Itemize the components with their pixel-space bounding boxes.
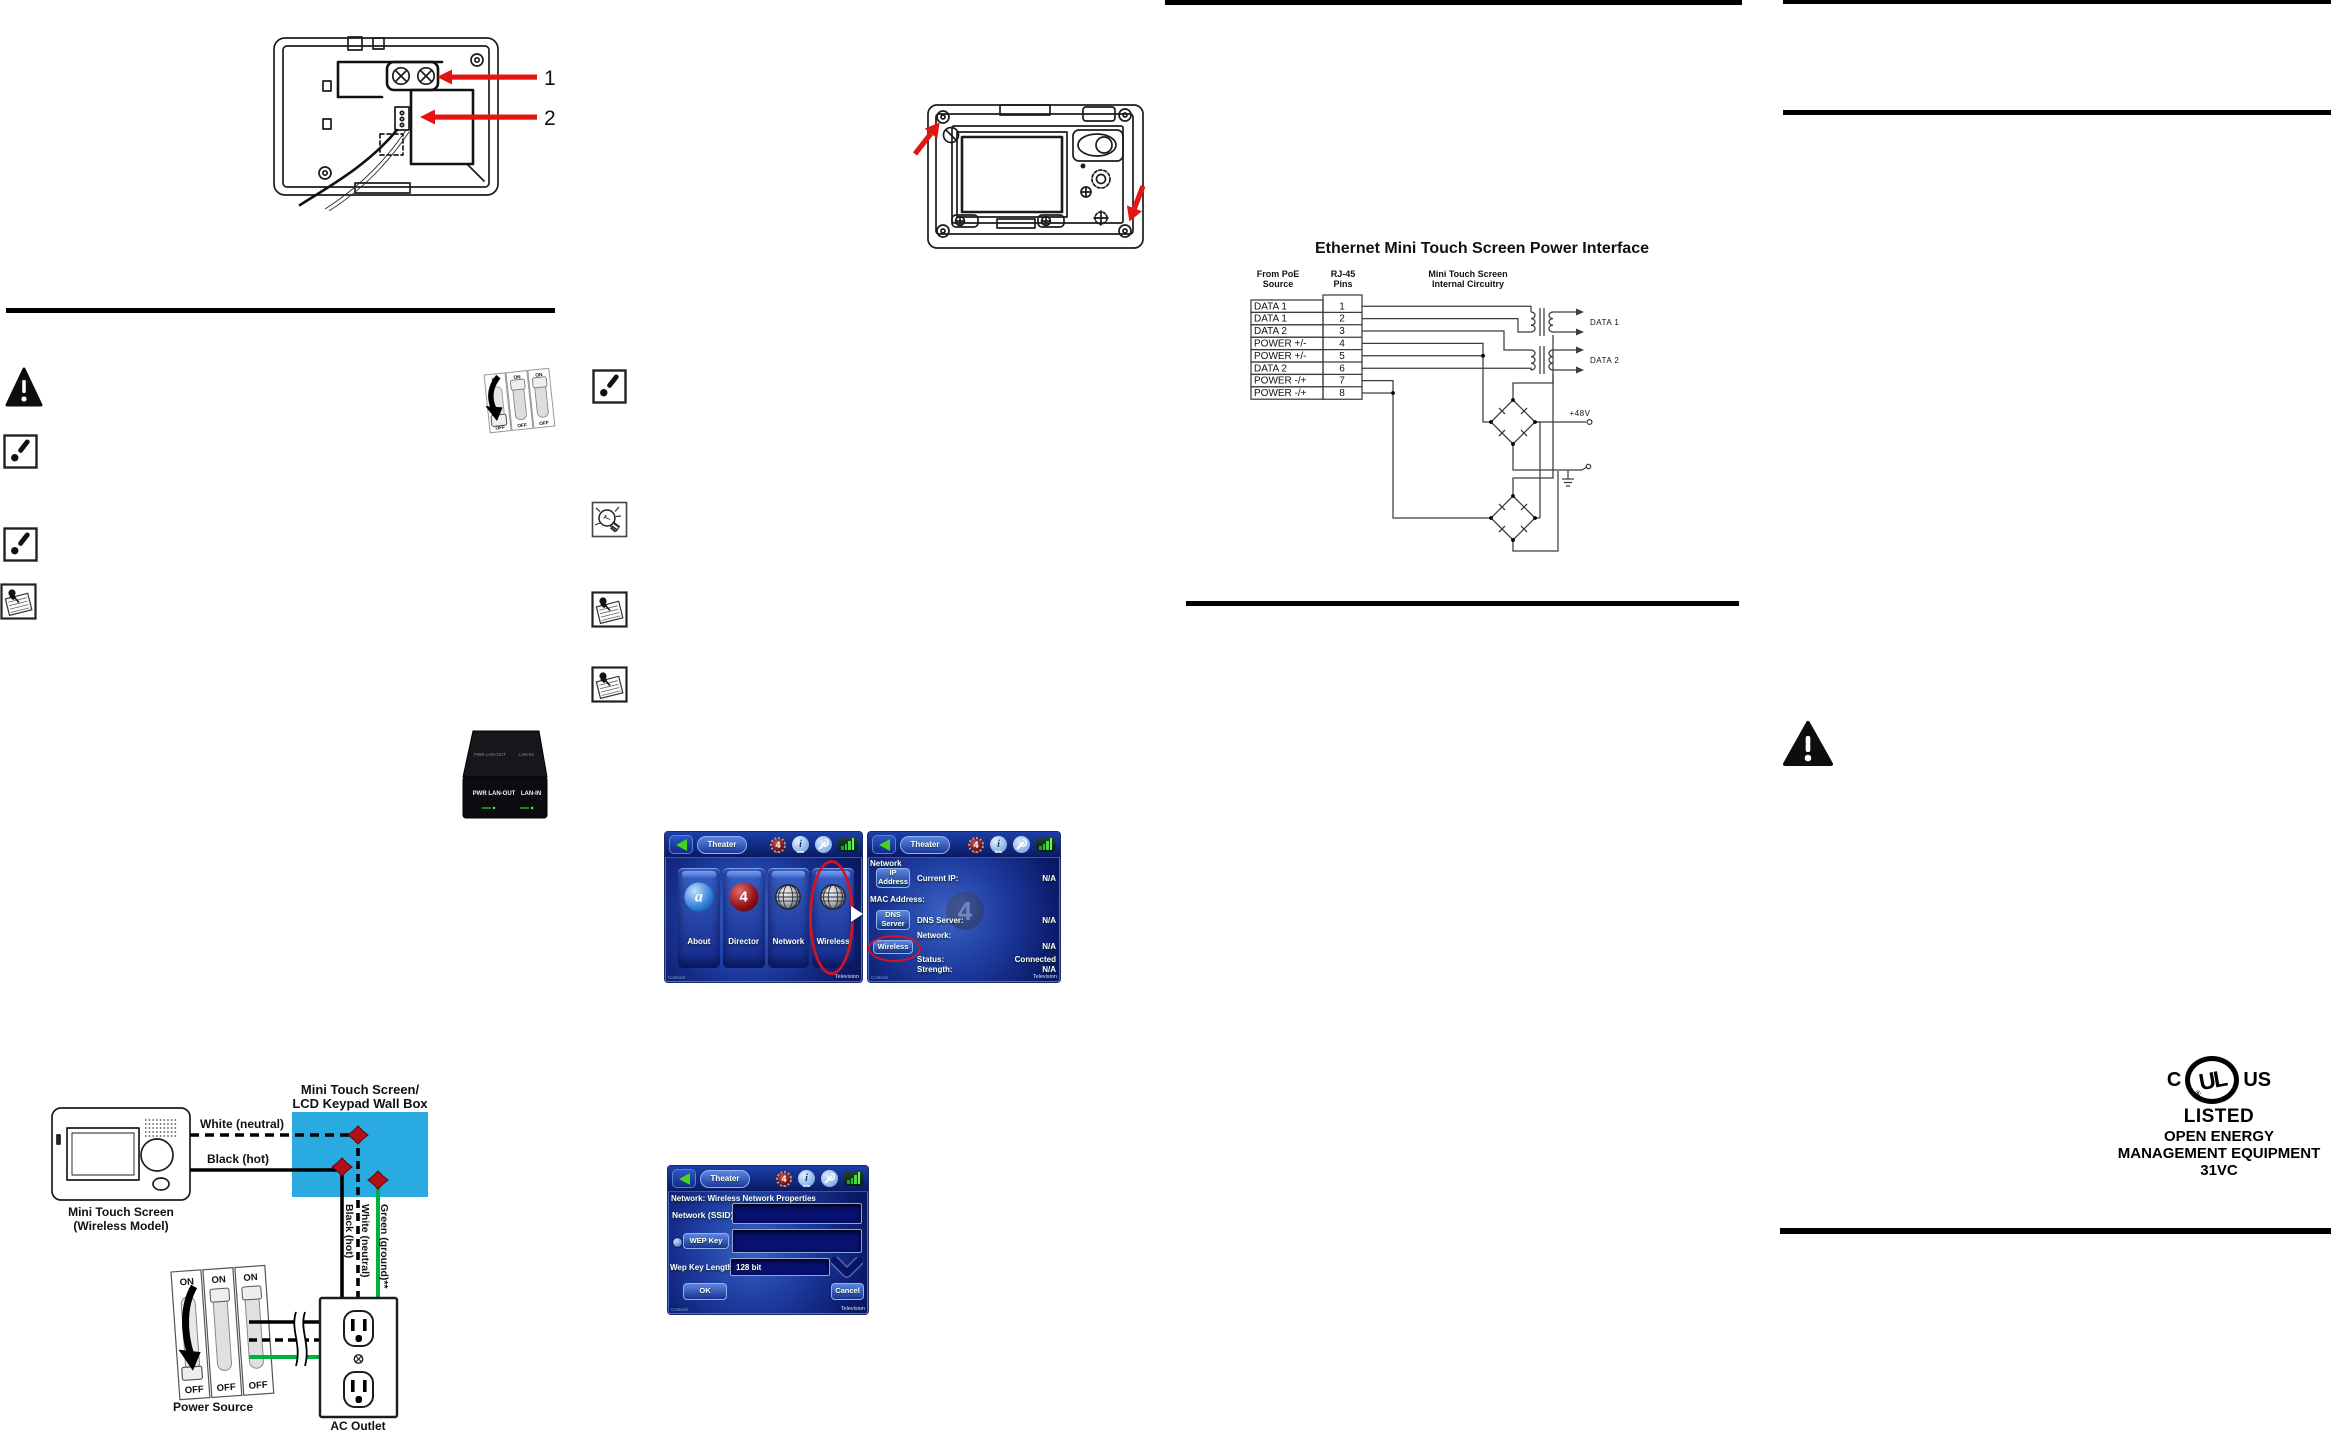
svg-text:OFF: OFF	[539, 420, 549, 427]
wep-key-input[interactable]	[732, 1229, 862, 1253]
signal-strength-icon[interactable]	[844, 1171, 864, 1186]
wep-length-label: Wep Key Length	[670, 1263, 733, 1272]
field-label: Network:	[917, 931, 951, 940]
field-value: N/A	[1042, 916, 1056, 925]
svg-text:1: 1	[1339, 301, 1345, 312]
svg-text:ON: ON	[243, 1272, 258, 1284]
field-label: DNS Server:	[917, 916, 964, 925]
ul-c: C	[2167, 1069, 2181, 1092]
wallbox-rear-diagram: 1 2	[270, 33, 570, 211]
svg-text:POWER -/+: POWER -/+	[1254, 376, 1307, 387]
ul-us: US	[2243, 1069, 2271, 1092]
ip-address-button[interactable]: IP Address	[876, 868, 910, 888]
svg-text:RJ-45: RJ-45	[1331, 269, 1356, 279]
info-icon[interactable]: iInfo	[798, 1170, 815, 1187]
svg-text:+48V: +48V	[1570, 409, 1591, 418]
ssid-input[interactable]	[732, 1203, 862, 1224]
svg-text:6: 6	[1339, 363, 1345, 374]
wep-key-button[interactable]: WEP Key	[683, 1233, 729, 1249]
signal-strength-icon[interactable]	[838, 837, 858, 852]
svg-text:OFF: OFF	[248, 1380, 268, 1392]
svg-text:POWER +/-: POWER +/-	[1254, 339, 1307, 350]
svg-text:OFF: OFF	[517, 422, 527, 429]
svg-text:POWER -/+: POWER -/+	[1254, 388, 1307, 399]
svg-text:5: 5	[1339, 351, 1345, 362]
field-label: MAC Address:	[870, 895, 925, 904]
svg-text:Green (ground)**: Green (ground)**	[378, 1204, 390, 1289]
brand-watermark: Control4	[871, 975, 888, 980]
settings-wrench-icon[interactable]	[815, 836, 832, 853]
ul-circle-logo: UL ®	[2185, 1056, 2239, 1104]
touchscreen-network-status: Theater 4 iInfo 4 Network IP Address DNS…	[868, 832, 1060, 982]
warning-triangle-icon	[1782, 719, 1834, 769]
ethernet-power-interface-diagram: Ethernet Mini Touch Screen Power Interfa…	[1250, 233, 1760, 583]
lightbulb-tip-icon	[591, 501, 628, 538]
ssid-label: Network (SSID)	[672, 1210, 733, 1220]
field-label: Current IP:	[917, 874, 958, 883]
svg-text:White (neutral): White (neutral)	[359, 1204, 371, 1278]
svg-text:Mini Touch Screen/: Mini Touch Screen/	[301, 1082, 420, 1097]
info-icon[interactable]: iInfo	[792, 836, 809, 853]
svg-text:2: 2	[1339, 314, 1345, 325]
warning-triangle-icon	[5, 366, 43, 408]
next-screen-arrow	[851, 906, 863, 922]
location-button[interactable]: Theater	[900, 836, 950, 854]
touchscreen-top-bar: Theater 4 iInfo	[665, 832, 862, 858]
divider-rule	[1783, 110, 2331, 115]
cancel-button[interactable]: Cancel	[831, 1283, 864, 1300]
tile-network[interactable]: Network	[768, 868, 810, 968]
pinned-note-icon	[0, 583, 37, 620]
ac-outlet	[320, 1298, 397, 1417]
svg-text:Power Source: Power Source	[173, 1400, 253, 1414]
field-label: Status:	[917, 955, 944, 964]
touchscreen-settings-main: Theater 4 iInfo a About 4 Director Ne	[665, 832, 862, 982]
svg-text:PWR LAN-OUT: PWR LAN-OUT	[474, 752, 506, 757]
svg-text:Mini Touch Screen: Mini Touch Screen	[1428, 269, 1507, 279]
network-heading: Network	[870, 859, 902, 868]
svg-text:PWR LAN-OUT: PWR LAN-OUT	[473, 791, 516, 797]
svg-text:DATA 1: DATA 1	[1254, 301, 1287, 312]
high-voltage-wiring-diagram: Mini Touch Screen/ LCD Keypad Wall Box M…	[45, 1080, 465, 1432]
svg-text:LAN-IN: LAN-IN	[521, 791, 541, 797]
screw-arrow-bottom-right	[1122, 183, 1151, 224]
annotation-circle-wireless	[868, 935, 921, 962]
svg-text:3: 3	[1339, 326, 1345, 337]
brand-watermark: Control4	[668, 975, 685, 980]
exclamation-note-icon	[592, 369, 627, 404]
svg-text:DATA 2: DATA 2	[1254, 363, 1287, 374]
director-icon: 4	[729, 883, 758, 912]
field-label: Strength:	[917, 965, 953, 974]
svg-text:Mini Touch Screen: Mini Touch Screen	[68, 1205, 174, 1219]
field-value: N/A	[1042, 942, 1056, 951]
about-icon: a	[684, 883, 713, 912]
svg-text:LAN-IN: LAN-IN	[518, 752, 533, 757]
room-label: Television	[1033, 974, 1057, 980]
svg-text:Source: Source	[1263, 279, 1294, 289]
svg-text:OFF: OFF	[216, 1382, 236, 1394]
page-heading: Network: Wireless Network Properties	[671, 1194, 816, 1203]
annotation-circle-wireless	[809, 860, 854, 975]
ethernet-row-labels: DATA 1 DATA 1 DATA 2 POWER +/- POWER +/-…	[1254, 301, 1307, 399]
control4-gear-icon[interactable]: 4	[968, 837, 984, 853]
power-source-switches: ON ON ON OFF OFF OFF	[171, 1265, 274, 1399]
tile-about[interactable]: a About	[678, 868, 720, 968]
svg-text:DATA 2: DATA 2	[1590, 356, 1619, 365]
back-button[interactable]	[672, 1169, 696, 1188]
switch-off-sticker-image: ON ON ON OFF OFF OFF	[474, 363, 556, 439]
svg-text:DATA 2: DATA 2	[1254, 326, 1287, 337]
touchscreen-top-bar: Theater 4 iInfo	[868, 832, 1060, 858]
room-label: Television	[841, 1306, 865, 1312]
settings-wrench-icon[interactable]	[821, 1170, 838, 1187]
svg-text:8: 8	[1339, 388, 1345, 399]
pinned-note-icon	[591, 666, 628, 703]
svg-text:Black (hot): Black (hot)	[343, 1204, 355, 1258]
exclamation-note-icon	[3, 434, 38, 469]
callout-arrow-2	[420, 110, 435, 125]
svg-text:OFF: OFF	[184, 1384, 204, 1396]
field-value: N/A	[1042, 965, 1056, 974]
ethernet-pin-numbers: 1 2 3 4 5 6 7 8	[1339, 301, 1345, 399]
svg-text:4: 4	[1339, 339, 1345, 350]
field-value: Connected	[1015, 955, 1056, 964]
touchscreen-top-bar: Theater 4 iInfo	[668, 1166, 868, 1192]
svg-text:Pins: Pins	[1333, 279, 1352, 289]
touchscreen-wireless-properties: Theater 4 iInfo Network: Wireless Networ…	[668, 1166, 868, 1314]
divider-rule	[1186, 601, 1739, 606]
callout-label-1: 1	[544, 67, 556, 90]
control4-gear-icon[interactable]: 4	[776, 1171, 792, 1187]
svg-text:AC Outlet: AC Outlet	[330, 1419, 385, 1432]
location-button[interactable]: Theater	[700, 1170, 750, 1188]
svg-text:DATA 1: DATA 1	[1254, 314, 1287, 325]
control4-gear-icon[interactable]: 4	[770, 837, 786, 853]
back-button[interactable]	[669, 835, 693, 854]
pinned-note-icon	[591, 591, 628, 628]
svg-text:From PoE: From PoE	[1257, 269, 1300, 279]
svg-text:(Wireless Model): (Wireless Model)	[73, 1219, 168, 1233]
svg-text:Black (hot): Black (hot)	[207, 1152, 269, 1166]
divider-rule	[1780, 1228, 2331, 1234]
back-arrow-icon	[676, 839, 687, 851]
location-button[interactable]: Theater	[697, 836, 747, 854]
ul-listed: LISTED	[2184, 1106, 2255, 1128]
exclamation-note-icon	[3, 527, 38, 562]
brand-watermark: Control4	[671, 1307, 688, 1312]
back-button[interactable]	[872, 835, 896, 854]
field-value: N/A	[1042, 874, 1056, 883]
signal-strength-icon[interactable]	[1036, 837, 1056, 852]
dns-server-button[interactable]: DNS Server	[876, 910, 910, 930]
svg-text:White (neutral): White (neutral)	[200, 1117, 284, 1131]
divider-rule	[1783, 0, 2331, 4]
wep-length-value: 128 bit	[736, 1263, 761, 1272]
tile-director[interactable]: 4 Director	[723, 868, 765, 968]
wallbox-front-diagram	[905, 100, 1157, 256]
svg-text:Internal Circuitry: Internal Circuitry	[1432, 279, 1504, 289]
svg-text:7: 7	[1339, 376, 1345, 387]
chevron-down-icon[interactable]	[831, 1257, 863, 1278]
ul-file-number: 31VC	[2200, 1162, 2238, 1179]
ethernet-diagram-title: Ethernet Mini Touch Screen Power Interfa…	[1315, 240, 1649, 257]
svg-text:LCD Keypad Wall Box: LCD Keypad Wall Box	[292, 1096, 428, 1111]
network-globe-icon	[774, 883, 803, 912]
svg-text:POWER +/-: POWER +/-	[1254, 351, 1307, 362]
room-label: Television	[835, 974, 859, 980]
callout-label-2: 2	[544, 107, 556, 130]
wallbox-rect	[292, 1112, 428, 1197]
back-arrow-icon	[879, 839, 890, 851]
divider-rule	[1165, 0, 1742, 5]
wep-key-radio[interactable]	[672, 1237, 683, 1248]
ul-category-line: MANAGEMENT EQUIPMENT	[2118, 1145, 2321, 1162]
ul-category-line: OPEN ENERGY	[2164, 1128, 2274, 1145]
settings-wrench-icon[interactable]	[1013, 836, 1030, 853]
svg-text:DATA 1: DATA 1	[1590, 318, 1619, 327]
svg-text:ON: ON	[211, 1274, 226, 1286]
ok-button[interactable]: OK	[683, 1283, 727, 1300]
ul-listing-mark: C UL ® US LISTED OPEN ENERGY MANAGEMENT …	[2103, 1056, 2331, 1180]
info-icon[interactable]: iInfo	[990, 836, 1007, 853]
back-arrow-icon	[679, 1173, 690, 1185]
poe-injector-image: PWR LAN-OUT LAN-IN PWR LAN-OUT LAN-IN	[456, 718, 554, 822]
divider-rule	[6, 308, 555, 313]
